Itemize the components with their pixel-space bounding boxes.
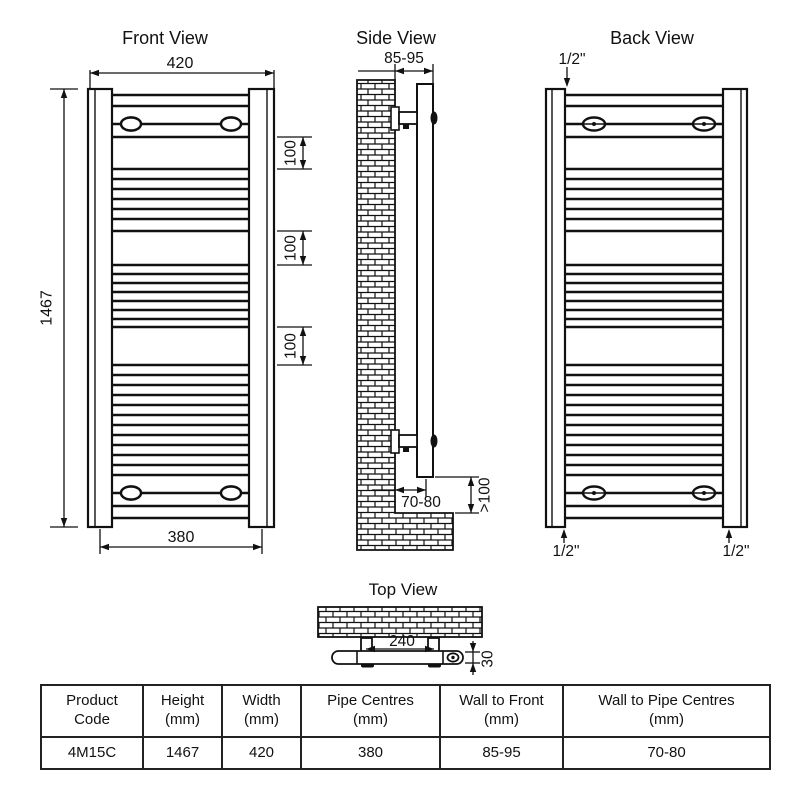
back-rungs xyxy=(565,95,723,518)
wall-section xyxy=(357,80,453,550)
top-view-title: Top View xyxy=(369,580,438,599)
dim-height: 1467 xyxy=(39,290,56,326)
back-view: Back View xyxy=(546,28,750,560)
back-brackets xyxy=(580,118,718,500)
bracket-flange-icon xyxy=(690,118,718,131)
spec-table-header-row: Product Code Height (mm) Width (mm) Pipe… xyxy=(41,685,770,737)
col-width: Width (mm) xyxy=(222,685,301,737)
dim-bracket-centres: 240 xyxy=(389,633,415,650)
col-pipe-centres: Pipe Centres (mm) xyxy=(301,685,440,737)
dim-rung-gap-2: 100 xyxy=(283,235,300,261)
spec-table-value-row: 4M15C 1467 420 380 85-95 70-80 xyxy=(41,737,770,769)
dim-depth: 30 xyxy=(480,650,497,668)
front-rungs xyxy=(112,95,249,518)
front-view-title: Front View xyxy=(122,28,209,48)
side-view: Side View 85-95 70-80 >100 xyxy=(356,28,493,550)
dim-wall-to-front: 85-95 xyxy=(384,50,424,67)
back-view-title: Back View xyxy=(610,28,695,48)
value-height: 1467 xyxy=(143,737,222,769)
bracket-flange-icon xyxy=(580,118,608,131)
bracket-icon xyxy=(121,118,141,131)
top-view: Top View 240 30 xyxy=(318,580,497,668)
value-wall-to-pipe-centres: 70-80 xyxy=(563,737,770,769)
col-height: Height (mm) xyxy=(143,685,222,737)
dim-pipe-centres: 380 xyxy=(168,529,195,546)
front-view: Front View 420 1467 100 100 100 380 xyxy=(39,28,300,546)
dim-rung-gap-1: 100 xyxy=(283,140,300,166)
dim-wall-to-pipe-centres: 70-80 xyxy=(401,494,441,511)
dim-connection-bottom-right: 1/2" xyxy=(722,543,749,560)
value-wall-to-front: 85-95 xyxy=(440,737,563,769)
bracket-icon xyxy=(221,487,241,500)
bracket-icon xyxy=(221,118,241,131)
top-radiator-tube xyxy=(332,651,463,668)
value-width: 420 xyxy=(222,737,301,769)
bracket-flange-icon xyxy=(690,487,718,500)
bracket-flange-icon xyxy=(580,487,608,500)
radiator-dimension-drawing: Front View 420 1467 100 100 100 380 xyxy=(0,0,800,800)
col-wall-to-front: Wall to Front (mm) xyxy=(440,685,563,737)
value-product-code: 4M15C xyxy=(41,737,143,769)
dim-rung-gap-3: 100 xyxy=(283,333,300,359)
back-rails xyxy=(546,89,747,527)
dim-connection-bottom-left: 1/2" xyxy=(552,543,579,560)
side-radiator-tube xyxy=(417,84,433,477)
spec-table: Product Code Height (mm) Width (mm) Pipe… xyxy=(40,684,771,770)
side-view-title: Side View xyxy=(356,28,437,48)
front-rails xyxy=(88,89,274,527)
col-product-code: Product Code xyxy=(41,685,143,737)
technical-diagram: Front View 420 1467 100 100 100 380 xyxy=(0,0,800,682)
dim-width: 420 xyxy=(167,55,194,72)
value-pipe-centres: 380 xyxy=(301,737,440,769)
front-brackets xyxy=(121,118,241,500)
bracket-icon xyxy=(121,487,141,500)
dim-floor-clearance: >100 xyxy=(477,477,494,512)
col-wall-to-pipe-centres: Wall to Pipe Centres (mm) xyxy=(563,685,770,737)
dim-connection-top: 1/2" xyxy=(558,51,585,68)
